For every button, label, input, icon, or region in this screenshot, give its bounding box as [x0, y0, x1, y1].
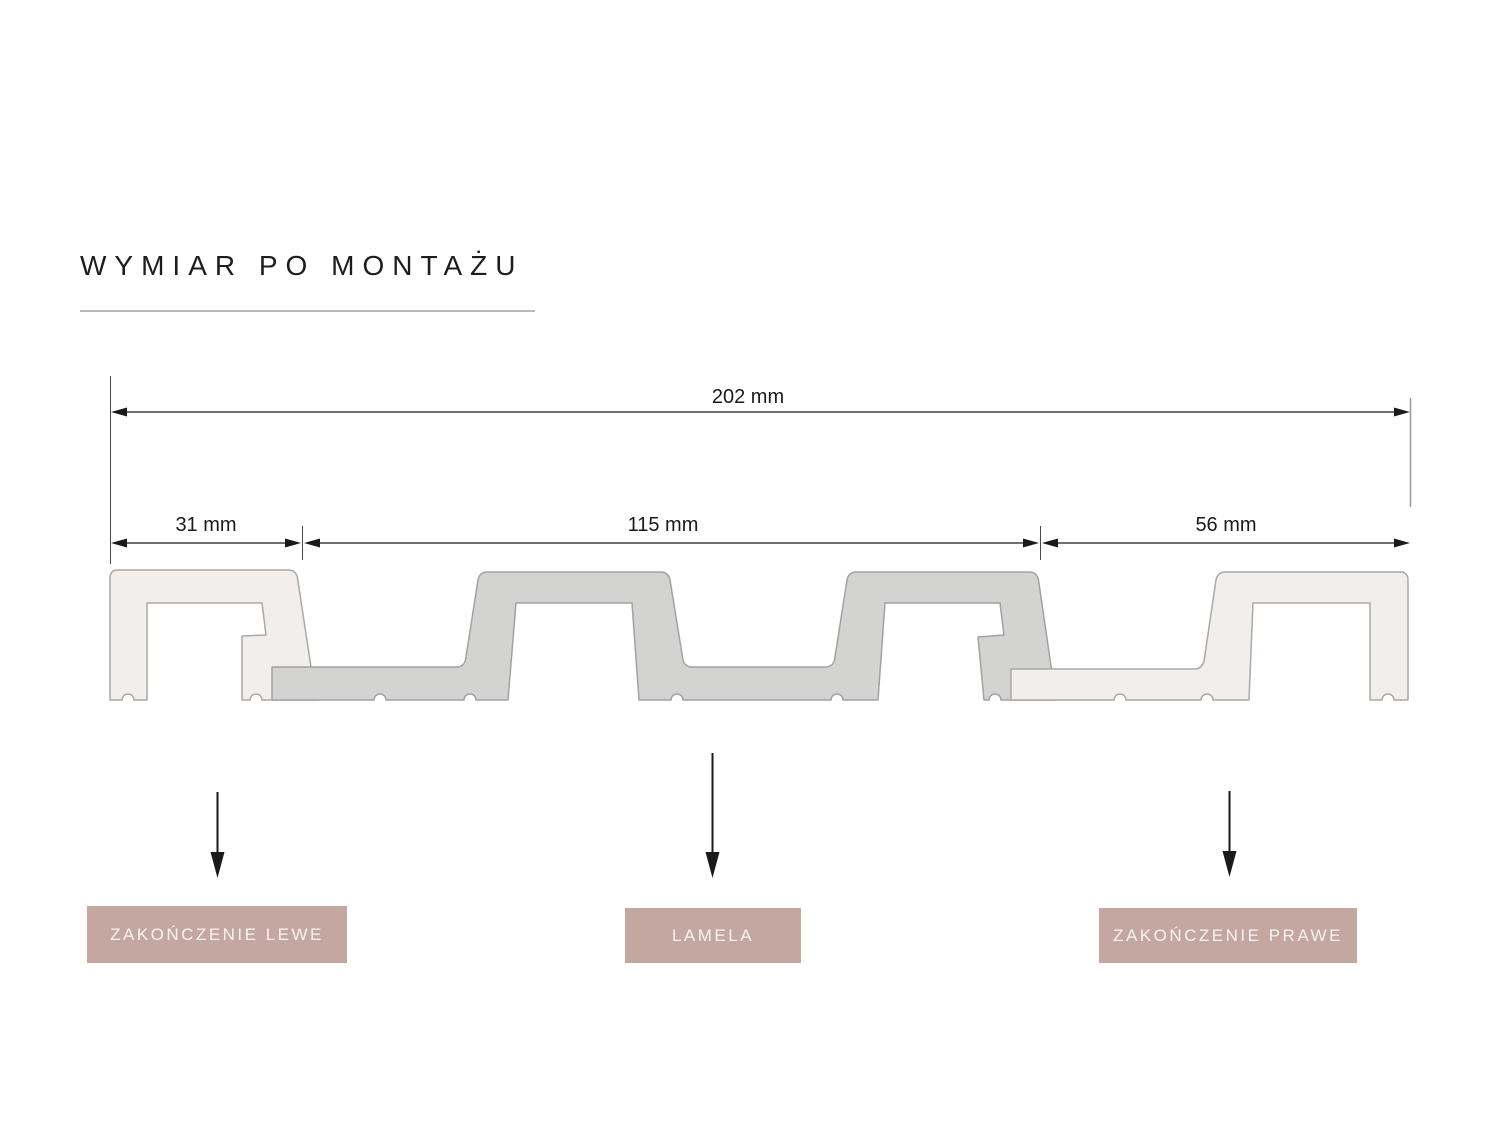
arrowhead-down-icon [1223, 851, 1237, 877]
pointer-arrow-right-ending [1223, 791, 1237, 877]
arrowhead-right-icon [1394, 408, 1410, 417]
arrowhead-down-icon [706, 852, 720, 878]
label-left-ending: ZAKOŃCZENIE LEWE [87, 906, 347, 963]
label-left-ending-text: ZAKOŃCZENIE LEWE [110, 925, 324, 945]
dimension-right-ending: 56 mm [1042, 514, 1410, 548]
profile-right-ending-shape [1011, 572, 1408, 700]
label-right-ending: ZAKOŃCZENIE PRAWE [1099, 908, 1357, 963]
dimension-lamela: 115 mm [304, 514, 1039, 548]
dimension-31-label: 31 mm [175, 514, 236, 536]
arrowhead-left-icon [1042, 539, 1058, 548]
label-lamela: LAMELA [625, 908, 801, 963]
label-right-ending-text: ZAKOŃCZENIE PRAWE [1113, 926, 1343, 946]
pointer-arrow-left-ending [211, 792, 225, 878]
dimension-total: 202 mm [111, 386, 1410, 417]
dimension-115-label: 115 mm [628, 514, 699, 536]
page: WYMIAR PO MONTAŻU 202 mm 31 mm 115 mm [0, 0, 1504, 1130]
pointer-arrow-lamela [706, 753, 720, 878]
dimension-56-label: 56 mm [1195, 514, 1256, 536]
dimension-left-ending: 31 mm [111, 514, 301, 548]
dimension-total-label: 202 mm [712, 386, 784, 408]
arrowhead-right-icon [285, 539, 301, 548]
arrowhead-right-icon [1023, 539, 1039, 548]
arrowhead-left-icon [111, 539, 127, 548]
label-lamela-text: LAMELA [672, 926, 754, 946]
arrowhead-right-icon [1394, 539, 1410, 548]
arrowhead-left-icon [111, 408, 127, 417]
arrowhead-down-icon [211, 852, 225, 878]
profile-lamela-shape [272, 572, 1056, 700]
arrowhead-left-icon [304, 539, 320, 548]
